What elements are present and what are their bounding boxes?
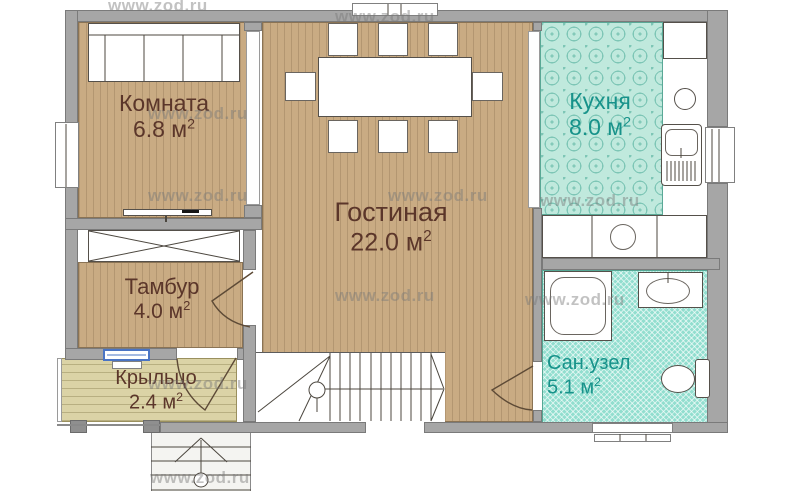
porch-edge-left: [57, 358, 62, 422]
radiator-bath: [594, 434, 671, 442]
room-area: 2.4 м2: [115, 390, 197, 415]
chair: [378, 120, 408, 153]
chair: [328, 120, 358, 153]
washbasin-bowl: [646, 278, 690, 304]
wall-room-bottom: [65, 218, 262, 230]
room-label-gostinaya: Гостиная 22.0 м2: [334, 197, 447, 257]
room-label-tambur: Тамбур 4.0 м2: [125, 274, 200, 324]
room-label-sanuzel: Сан.узел 5.1 м2: [547, 352, 630, 400]
wall-left-lower: [65, 186, 78, 358]
wall-bottom-left: [160, 422, 366, 433]
room-name: Сан.узел: [547, 352, 630, 375]
chair: [428, 120, 458, 153]
porch-edge-bottom: [57, 424, 160, 427]
wall-living-bath-upper: [533, 208, 542, 362]
room-area: 4.0 м2: [125, 299, 200, 324]
window-porch-blue: [103, 349, 150, 361]
room-name: Кухня: [569, 88, 631, 114]
wardrobe: [88, 230, 240, 262]
room-label-kuhnya: Кухня 8.0 м2: [569, 88, 631, 141]
chair: [378, 23, 408, 56]
floor-plan: Комната 6.8 м2 Гостиная 22.0 м2 Кухня 8.…: [0, 0, 795, 496]
room-name: Гостиная: [334, 197, 447, 228]
chair: [428, 23, 458, 56]
room-name: Тамбур: [125, 274, 200, 299]
window-bath-bottom: [592, 423, 673, 433]
wall-vestibule-right-b: [243, 325, 256, 422]
room-label-komnata: Комната 6.8 м2: [119, 90, 209, 143]
kitchen-sink: [665, 129, 698, 156]
window-kitchen-right: [705, 127, 735, 183]
wall-living-bath-lower: [533, 410, 542, 422]
wall-bottom-right: [424, 422, 728, 433]
room-area: 5.1 м2: [547, 375, 630, 400]
desk: [123, 209, 212, 216]
fridge: [663, 22, 707, 59]
interior-staircase: [256, 352, 445, 422]
wall-stub-kitchen: [533, 22, 542, 31]
room-area: 6.8 м2: [119, 116, 209, 142]
window-room-left: [55, 122, 79, 188]
exterior-stairs: [151, 433, 251, 491]
wall-left-upper: [65, 10, 78, 124]
wall-stub-mid: [244, 205, 262, 218]
wall-right-upper: [707, 10, 728, 127]
partition-room-living: [246, 31, 260, 205]
room-label-kryltso: Крыльцо 2.4 м2: [115, 367, 197, 415]
chair: [285, 72, 316, 101]
room-name: Крыльцо: [115, 367, 197, 390]
wall-bath-top: [542, 258, 720, 270]
wall-vestibule-right-a: [243, 230, 256, 270]
wall-stub-top: [244, 22, 262, 31]
toilet-bowl: [661, 365, 695, 393]
boiler: [674, 88, 696, 110]
chair: [472, 72, 503, 101]
shower-tray: [550, 277, 606, 335]
chair: [328, 23, 358, 56]
room-name: Комната: [119, 90, 209, 116]
room-area: 8.0 м2: [569, 114, 631, 140]
sofa: [88, 23, 240, 82]
partition-living-kitchen: [528, 31, 540, 208]
stove-burner: [610, 224, 636, 250]
room-area: 22.0 м2: [334, 228, 447, 257]
window-living-top: [352, 3, 438, 16]
toilet-tank: [695, 359, 710, 398]
dining-table: [318, 57, 472, 117]
wall-right-lower: [707, 183, 728, 433]
